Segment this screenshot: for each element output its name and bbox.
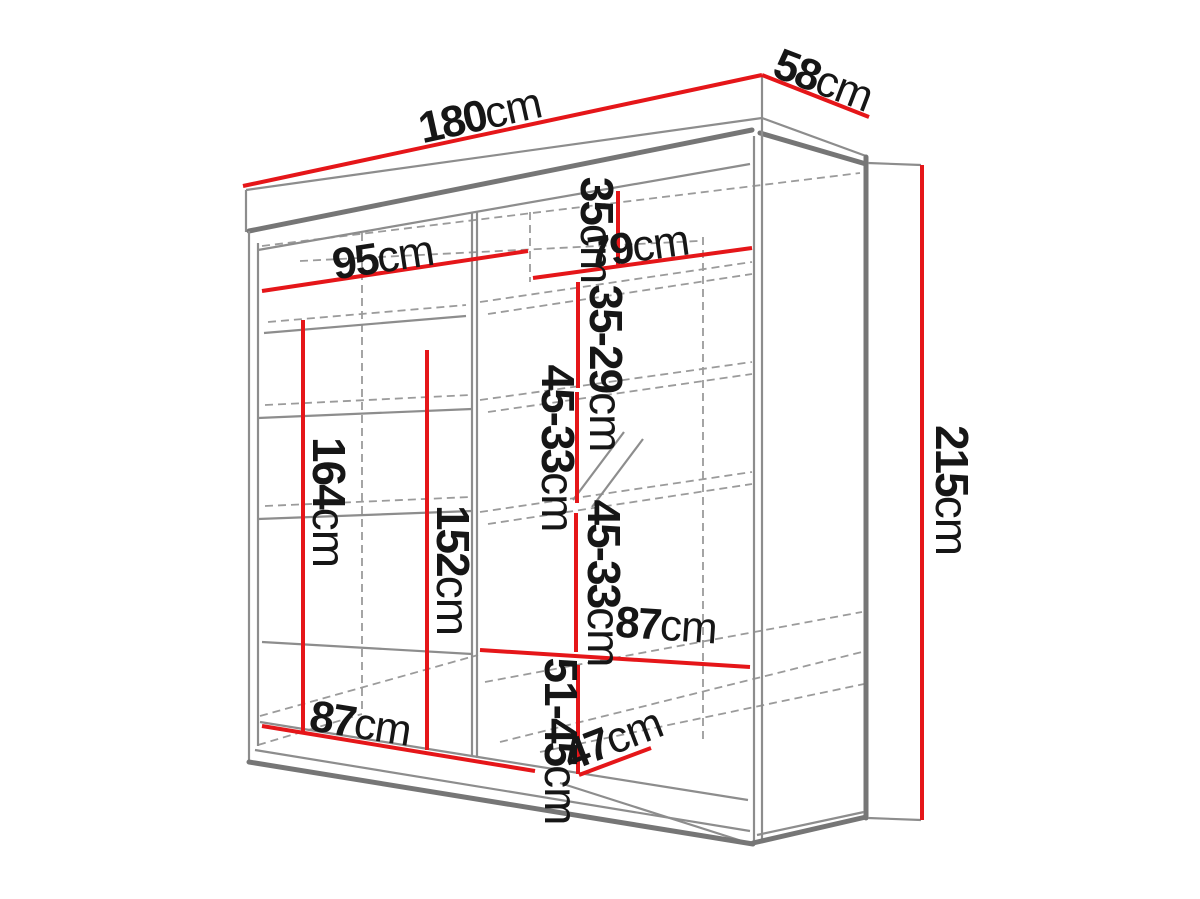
diagram-canvas: 180cm 58cm 215cm 95cm 79cm 35cm 35-29cm … xyxy=(0,0,1200,899)
left-bottom-unit: cm xyxy=(351,699,415,756)
hanging-rail xyxy=(264,316,466,333)
middle-spacing-2-value: 45-33 xyxy=(578,500,630,608)
wardrobe-dimension-diagram: 180cm 58cm 215cm 95cm 79cm 35cm 35-29cm … xyxy=(0,0,1200,899)
depth-label: 58cm xyxy=(767,39,879,121)
bottom-front-edge xyxy=(249,762,753,844)
right-bottom-edge xyxy=(753,817,866,843)
height-unit: cm xyxy=(926,496,978,555)
height-tick-bottom xyxy=(868,818,921,820)
left-shelf-1-depth xyxy=(265,395,470,405)
left-hanging-label: 164cm xyxy=(303,437,355,567)
top-section-label: 35cm xyxy=(571,177,623,284)
left-bottom-label: 87cm xyxy=(306,692,414,756)
right-shelf-value: 87 xyxy=(614,598,663,650)
height-value: 215 xyxy=(926,425,978,497)
left-hanging-value: 164 xyxy=(303,437,355,510)
left-bottom-value: 87 xyxy=(306,692,359,748)
right-shelf-unit: cm xyxy=(658,601,718,654)
upper-spacing-label: 35-29cm xyxy=(580,285,632,452)
width-unit: cm xyxy=(480,78,546,138)
top-shelf-right-unit: cm xyxy=(629,215,692,271)
center-hanging-label: 152cm xyxy=(427,505,479,635)
dimension-labels: 180cm 58cm 215cm 95cm 79cm 35cm 35-29cm … xyxy=(303,39,978,824)
upper-spacing-value: 35-29 xyxy=(580,285,632,393)
center-hanging-value: 152 xyxy=(427,505,479,576)
middle-spacing-1-label: 45-33cm xyxy=(532,365,584,532)
height-label: 215cm xyxy=(926,425,978,555)
center-hanging-unit: cm xyxy=(427,576,479,635)
top-section-unit: cm xyxy=(571,224,623,283)
width-label: 180cm xyxy=(414,78,546,153)
left-shelf-3 xyxy=(262,642,472,654)
width-value: 180 xyxy=(414,91,491,154)
left-hanging-unit: cm xyxy=(303,508,355,567)
middle-spacing-1-value: 45-33 xyxy=(532,365,584,473)
upper-spacing-unit: cm xyxy=(580,392,632,451)
top-section-value: 35 xyxy=(571,177,623,226)
left-shelf-1 xyxy=(258,409,472,418)
middle-spacing-1-unit: cm xyxy=(532,472,584,531)
top-shelf-left-unit: cm xyxy=(373,226,436,283)
height-tick-top xyxy=(868,163,921,165)
right-shelf-label: 87cm xyxy=(614,598,719,654)
